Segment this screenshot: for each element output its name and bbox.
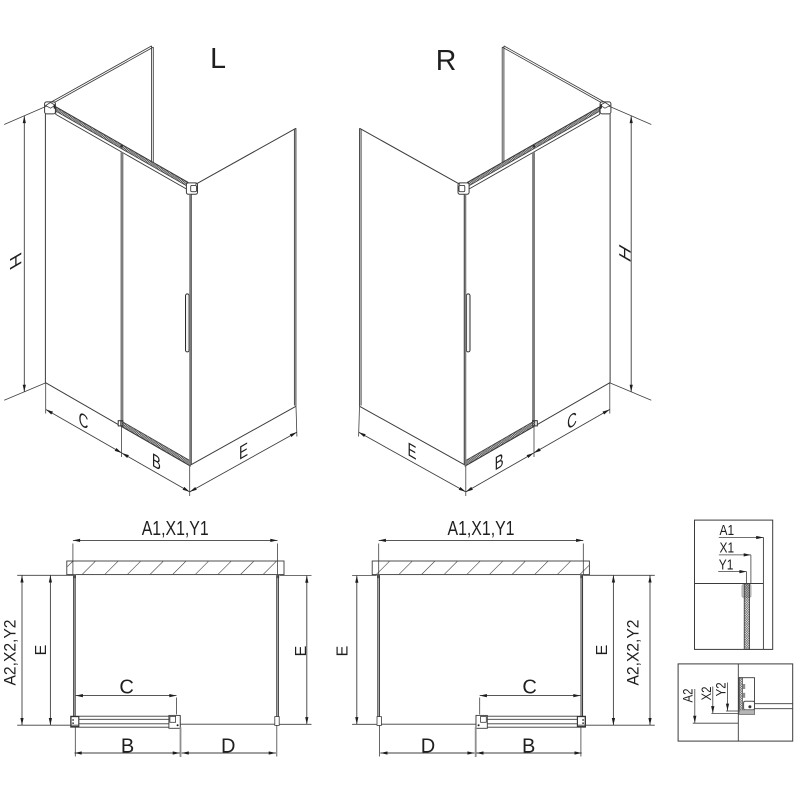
svg-text:X1: X1 bbox=[720, 540, 735, 557]
svg-text:E: E bbox=[335, 646, 352, 657]
svg-text:A2,X2,Y2: A2,X2,Y2 bbox=[1, 620, 20, 686]
svg-text:Y2: Y2 bbox=[712, 682, 728, 696]
svg-text:L: L bbox=[210, 43, 226, 75]
svg-text:A1,X1,Y1: A1,X1,Y1 bbox=[448, 518, 515, 540]
svg-text:E: E bbox=[33, 645, 50, 656]
svg-text:D: D bbox=[421, 736, 435, 758]
svg-text:D: D bbox=[221, 736, 235, 758]
svg-text:A2,X2,Y2: A2,X2,Y2 bbox=[623, 620, 642, 686]
svg-text:E: E bbox=[594, 645, 611, 656]
svg-text:B: B bbox=[522, 736, 535, 758]
svg-text:Y1: Y1 bbox=[719, 556, 734, 573]
svg-text:A1: A1 bbox=[720, 522, 735, 539]
svg-text:C: C bbox=[522, 676, 536, 698]
svg-text:A2: A2 bbox=[680, 688, 696, 702]
svg-text:A1,X1,Y1: A1,X1,Y1 bbox=[142, 518, 209, 540]
svg-text:X2: X2 bbox=[698, 686, 714, 700]
svg-text:C: C bbox=[119, 676, 133, 698]
svg-text:R: R bbox=[436, 45, 457, 77]
svg-text:E: E bbox=[293, 646, 310, 657]
svg-text:B: B bbox=[121, 736, 134, 758]
